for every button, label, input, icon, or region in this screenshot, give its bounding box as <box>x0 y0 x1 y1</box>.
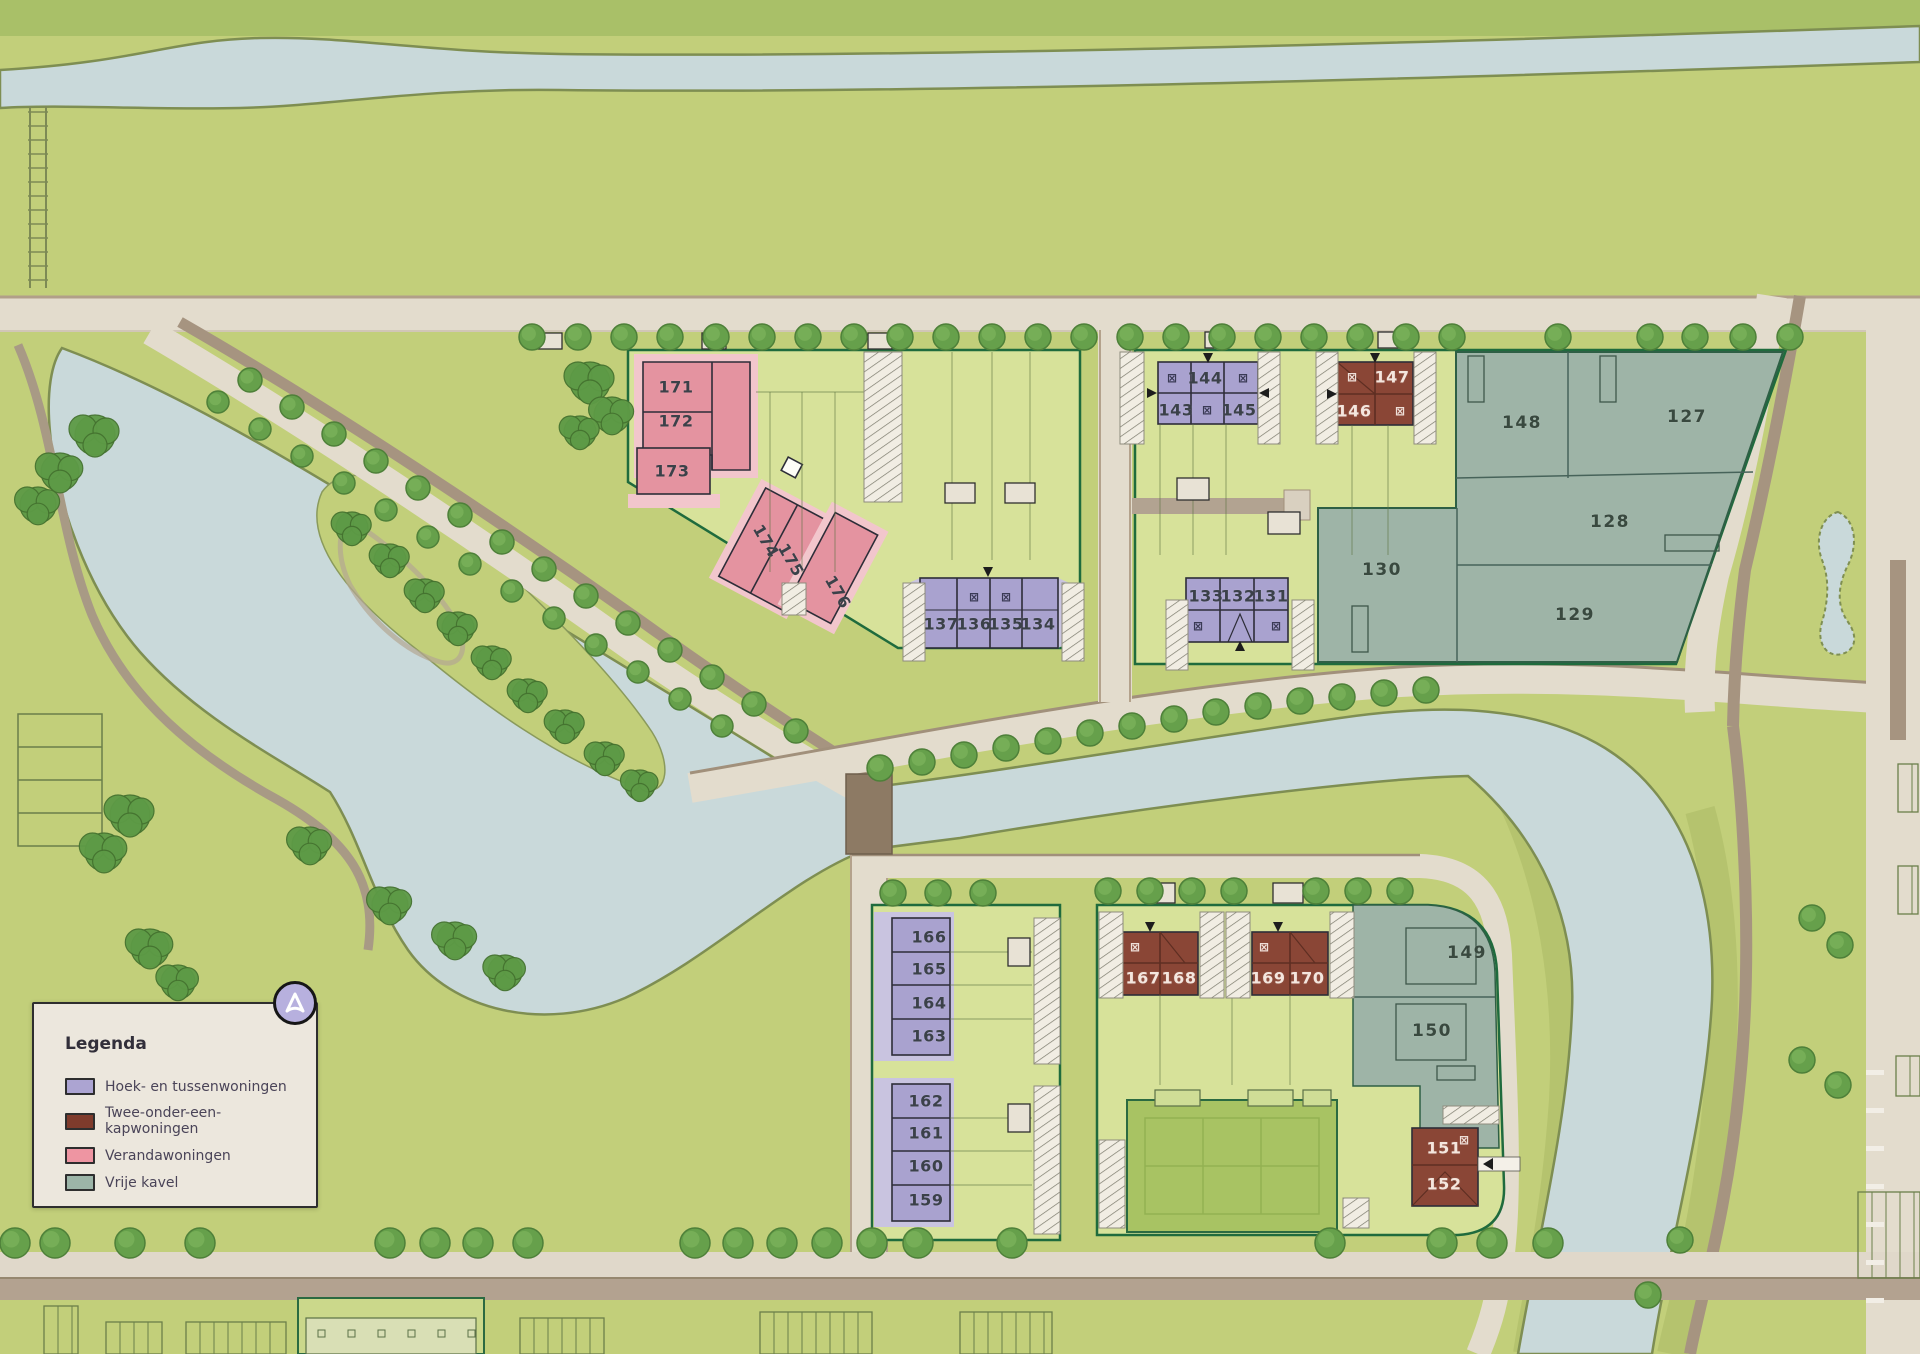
legend-item-tweekap: Twee-onder-een-kapwoningen <box>65 1105 298 1137</box>
plot-label-168[interactable]: 168 <box>1162 969 1197 988</box>
plot-label-160[interactable]: 160 <box>909 1157 944 1176</box>
plot-label-173[interactable]: 173 <box>655 462 690 481</box>
canal-bridge <box>846 774 892 854</box>
unit-mark-icon: ⊠ <box>1202 404 1212 416</box>
legend-label: Hoek- en tussenwoningen <box>105 1079 287 1095</box>
top-field-strip <box>0 0 1920 36</box>
plot-label-134[interactable]: 134 <box>1021 615 1056 634</box>
unit-mark-icon: ⊠ <box>1271 620 1281 632</box>
plot-label-133[interactable]: 133 <box>1189 587 1224 606</box>
legend-swatch-veranda <box>65 1147 95 1164</box>
plot-label-161[interactable]: 161 <box>909 1124 944 1143</box>
plot-label-150[interactable]: 150 <box>1412 1021 1452 1041</box>
plot-label-137[interactable]: 137 <box>924 615 959 634</box>
unit-mark-icon: ⊠ <box>1193 620 1203 632</box>
plot-label-136[interactable]: 136 <box>957 615 992 634</box>
plot-label-166[interactable]: 166 <box>912 928 947 947</box>
legend-swatch-vrije <box>65 1174 95 1191</box>
plot-label-146[interactable]: 146 <box>1337 402 1372 421</box>
plot-label-130[interactable]: 130 <box>1362 560 1402 580</box>
legend-item-veranda: Verandawoningen <box>65 1147 298 1164</box>
unit-mark-icon: ⊠ <box>1259 941 1269 953</box>
legend-label: Vrije kavel <box>105 1175 178 1191</box>
sport-field <box>1127 1090 1337 1232</box>
legend-swatch-tweekap <box>65 1113 95 1130</box>
plot-label-169[interactable]: 169 <box>1251 969 1286 988</box>
plot-label-162[interactable]: 162 <box>909 1092 944 1111</box>
plot-label-129[interactable]: 129 <box>1555 605 1595 625</box>
unit-mark-icon: ⊠ <box>1001 591 1011 603</box>
plot-label-143[interactable]: 143 <box>1159 401 1194 420</box>
plot-label-131[interactable]: 131 <box>1254 587 1289 606</box>
plot-label-127[interactable]: 127 <box>1667 407 1707 427</box>
plot-label-159[interactable]: 159 <box>909 1191 944 1210</box>
plot-label-149[interactable]: 149 <box>1447 943 1487 963</box>
legend-swatch-hoek <box>65 1078 95 1095</box>
legend-label: Twee-onder-een-kapwoningen <box>105 1105 298 1137</box>
plot-label-145[interactable]: 145 <box>1222 401 1257 420</box>
plot-label-170[interactable]: 170 <box>1290 969 1325 988</box>
building-134-137 <box>904 578 1074 648</box>
plot-label-165[interactable]: 165 <box>912 960 947 979</box>
unit-mark-icon: ⊠ <box>1167 372 1177 384</box>
unit-mark-icon: ⊠ <box>1459 1134 1469 1146</box>
plot-label-152[interactable]: 152 <box>1427 1175 1462 1194</box>
plot-label-171[interactable]: 171 <box>659 378 694 397</box>
plot-label-147[interactable]: 147 <box>1375 368 1410 387</box>
plot-label-128[interactable]: 128 <box>1590 512 1630 532</box>
legend-items: Hoek- en tussenwoningenTwee-onder-een-ka… <box>65 1078 298 1191</box>
compass-north-icon <box>273 981 317 1025</box>
plot-label-144[interactable]: 144 <box>1188 369 1223 388</box>
legend-item-hoek: Hoek- en tussenwoningen <box>65 1078 298 1095</box>
plot-label-132[interactable]: 132 <box>1221 587 1256 606</box>
legend-title: Legenda <box>65 1034 298 1054</box>
legend-panel: Legenda Hoek- en tussenwoningenTwee-onde… <box>32 1002 318 1208</box>
plot-label-151[interactable]: 151 <box>1427 1139 1462 1158</box>
plot-label-172[interactable]: 172 <box>659 412 694 431</box>
plot-label-135[interactable]: 135 <box>989 615 1024 634</box>
plot-label-164[interactable]: 164 <box>912 994 947 1013</box>
unit-mark-icon: ⊠ <box>1347 371 1357 383</box>
legend-label: Verandawoningen <box>105 1148 231 1164</box>
unit-mark-icon: ⊠ <box>969 591 979 603</box>
plot-label-167[interactable]: 167 <box>1126 969 1161 988</box>
unit-mark-icon: ⊠ <box>1130 941 1140 953</box>
unit-mark-icon: ⊠ <box>1395 405 1405 417</box>
site-plan: 1711721731741751761371361351341441431451… <box>0 0 1920 1354</box>
unit-mark-icon: ⊠ <box>1238 372 1248 384</box>
plot-label-148[interactable]: 148 <box>1502 413 1542 433</box>
legend-item-vrije: Vrije kavel <box>65 1174 298 1191</box>
plot-label-163[interactable]: 163 <box>912 1027 947 1046</box>
